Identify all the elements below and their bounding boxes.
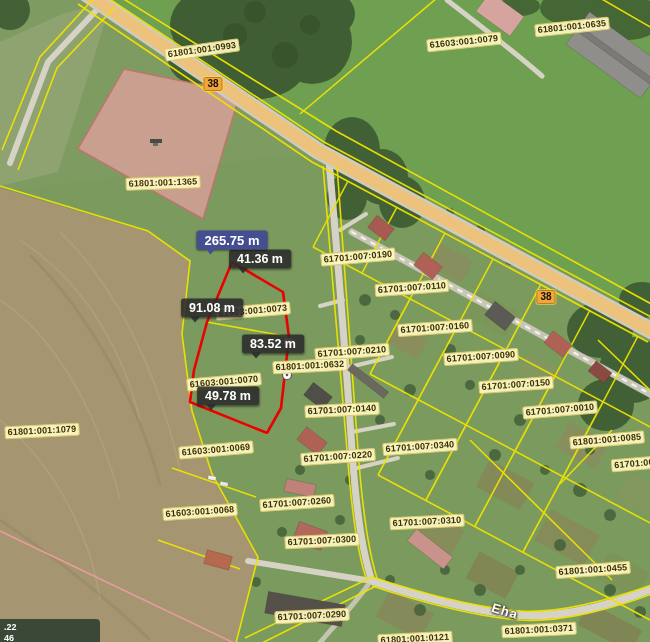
map-canvas[interactable] [0, 0, 650, 642]
signpost-icon [284, 338, 293, 345]
coordinates-box: .22 46 [0, 619, 100, 642]
terrain-layer [0, 0, 650, 642]
coords-line-1: .22 [4, 622, 100, 633]
map-viewport[interactable]: 61801:001:099361603:001:007961801:001:06… [0, 0, 650, 642]
coords-line-2: 46 [4, 633, 100, 642]
